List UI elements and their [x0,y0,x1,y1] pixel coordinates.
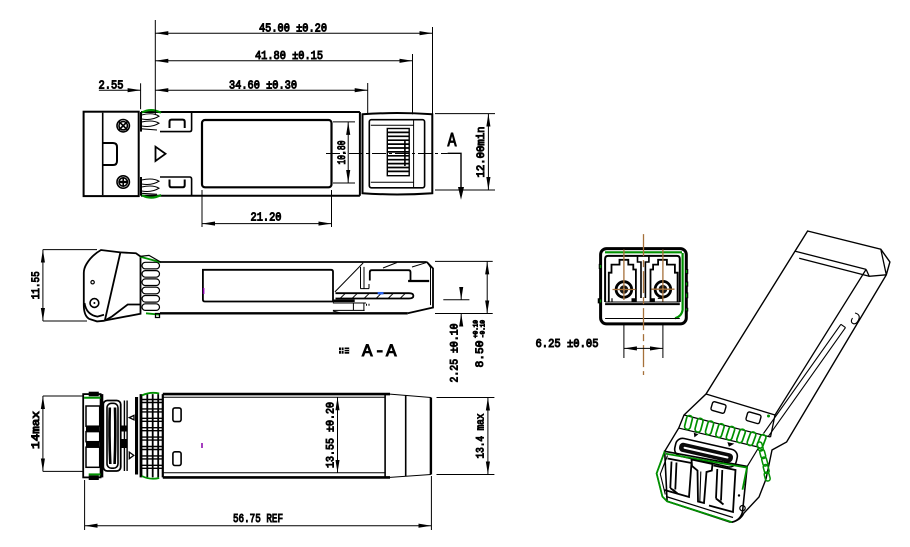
svg-text:2.25 ±0.10: 2.25 ±0.10 [450,324,462,383]
svg-text:13.4 max: 13.4 max [476,413,488,458]
svg-text:+0.10: +0.10 [473,320,480,338]
svg-text:-0.10: -0.10 [480,320,487,338]
svg-text:2.55: 2.55 [99,79,124,93]
svg-text:14max: 14max [31,411,43,449]
svg-text:11.55: 11.55 [31,271,43,299]
svg-text:41.80 ±0.15: 41.80 ±0.15 [255,49,323,63]
svg-text:A: A [448,130,457,152]
svg-text:21.20: 21.20 [251,211,282,225]
svg-text:10.80: 10.80 [337,141,349,165]
svg-text:6.25 ±0.05: 6.25 ±0.05 [536,337,599,351]
svg-text:A: A [386,342,397,362]
svg-text:45.00 ±0.20: 45.00 ±0.20 [259,22,327,36]
svg-text:34.60 ±0.30: 34.60 ±0.30 [229,79,297,93]
svg-text:12.00min: 12.00min [476,127,488,178]
svg-text:56.75 REF: 56.75 REF [233,512,283,526]
svg-text:13.55 ±0.20: 13.55 ±0.20 [326,402,338,468]
svg-text:A: A [362,342,373,362]
svg-text:8.50: 8.50 [475,341,487,368]
svg-text:-: - [375,342,386,362]
